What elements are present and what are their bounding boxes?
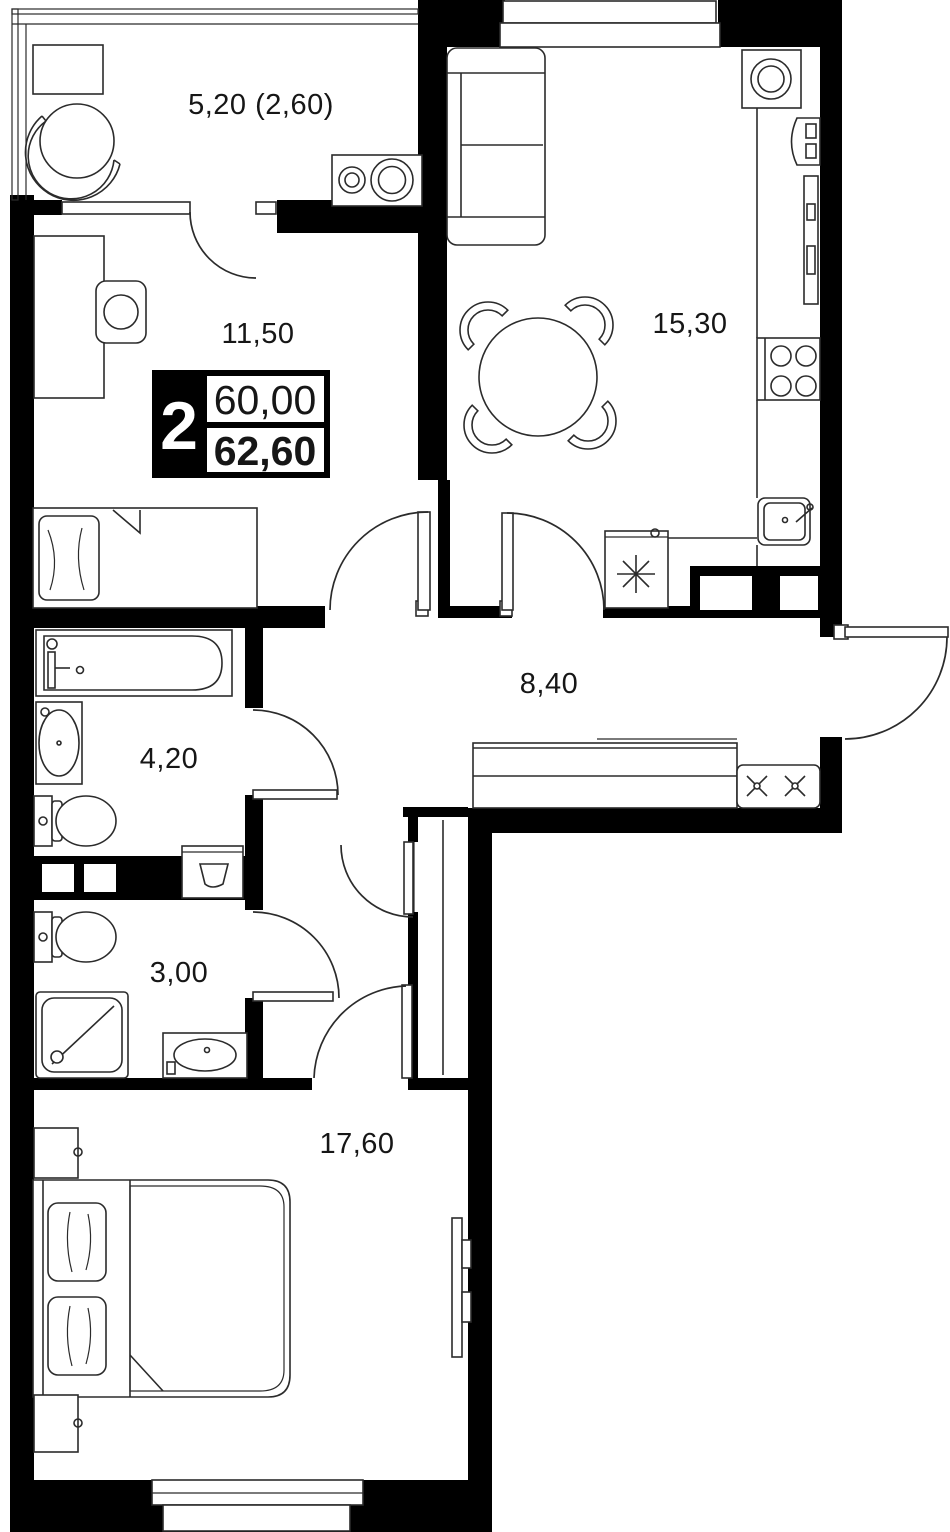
room-label-kitchen-living: 15,30 [652,308,727,340]
toilet-icon [34,796,116,846]
room-label-shower-room: 3,00 [150,957,208,989]
room-small-door [330,512,430,610]
balcony-partition-post [256,202,276,214]
floor-plan: 5,20 (2,60) 11,50 15,30 8,40 4,20 3,00 1… [0,0,950,1532]
bedroom-window-sill [163,1505,350,1531]
balcony-partition-window [62,202,190,214]
closet-door [341,842,413,917]
room-label-hallway: 8,40 [520,668,578,700]
single-bed [33,508,257,608]
tall-cabinet-icon [804,176,818,304]
room-label-bedroom: 17,60 [319,1128,394,1160]
vent-shaft-kitchen-2 [780,576,818,610]
bathroom-door [253,710,338,799]
double-bed [33,1180,290,1397]
shoe-cabinet [737,765,820,808]
nightstand-1 [34,1128,82,1178]
vent-shaft-kitchen-1 [700,576,752,610]
entrance-door [845,627,948,739]
washing-machine-icon [742,50,801,108]
shower-room-door [253,912,339,1001]
kitchen-bay-window [500,1,720,47]
wardrobe [473,739,737,808]
nightstand-2 [34,1395,82,1452]
hall-closet [414,820,443,1075]
badge-room-count: 2 [160,388,198,464]
room-label-room-small: 11,50 [222,318,295,350]
sofa [447,48,545,245]
badge-area-total: 62,60 [214,428,317,474]
balcony-appliance-icon [332,155,422,206]
room-label-balcony: 5,20 (2,60) [188,89,334,121]
badge-area-living: 60,00 [214,377,317,423]
shower-icon [36,992,128,1078]
room-label-bathroom: 4,20 [140,743,198,775]
toilet-icon-2 [34,912,116,962]
balcony-door [190,212,256,278]
dining-table [479,318,597,436]
desk [34,236,104,398]
vent-shaft-bath-1 [42,864,74,892]
kitchen-sink-icon [758,498,813,545]
stove-icon [757,338,820,400]
info-badge: 2 60,00 62,60 [152,370,330,478]
dining-set [448,285,627,464]
desk-chair [96,281,146,343]
bathtub-icon [36,630,232,696]
kitchen-door [502,513,604,610]
vent-shaft-bath-2 [84,864,116,892]
fridge-icon [792,118,821,165]
washbasin-icon [36,702,82,784]
balcony-table [33,45,103,94]
washbasin-icon-2 [163,1033,247,1078]
balcony-chair-icon [25,104,120,200]
laundry-box-icon [182,846,243,898]
boiler-icon [605,529,668,608]
